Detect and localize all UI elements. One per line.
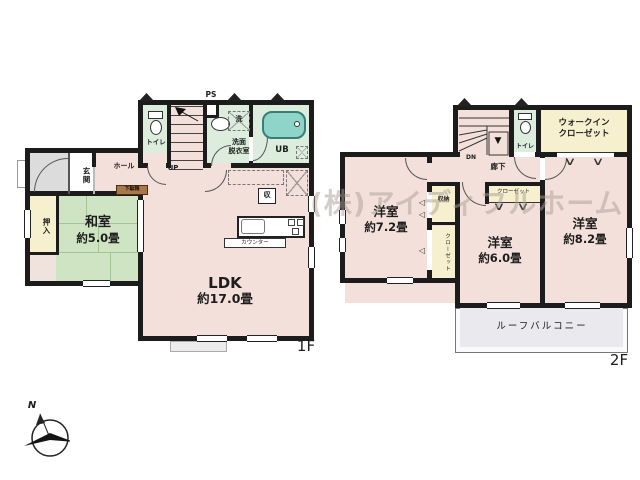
floor1-label: 1F: [290, 338, 322, 355]
wall: [340, 152, 460, 157]
washroom-label-1: 洗面: [222, 139, 256, 147]
storage-2f: [432, 186, 455, 222]
wall: [203, 163, 211, 168]
closet-side-label: クローゼット: [437, 228, 450, 276]
ldk-size-label: 約17.0畳: [187, 292, 263, 306]
storage-label: 収: [258, 192, 276, 200]
wall: [427, 222, 460, 225]
wall: [453, 105, 458, 157]
toilet-bowl-icon: [150, 120, 162, 135]
bedroom3-size-label: 約8.2畳: [555, 233, 615, 246]
bedroom2-size-label: 約6.0畳: [470, 252, 530, 265]
toilet-label: トイレ: [141, 139, 171, 146]
wall: [427, 182, 460, 186]
laundry-label: 洗: [232, 116, 246, 124]
bedroom1-size-label: 約7.2畳: [356, 221, 416, 234]
wall: [138, 100, 314, 105]
washitsu-label: 和室: [68, 216, 128, 230]
wall: [455, 182, 460, 308]
window: [197, 335, 227, 342]
toilet-tank-icon: [518, 113, 532, 120]
window: [339, 238, 346, 252]
tokonoma: [30, 254, 56, 281]
window: [487, 302, 520, 309]
storage-2f-label: 収納: [433, 197, 454, 204]
vent-triangle-icon: [514, 98, 529, 106]
stove-burner-icon: [288, 219, 295, 226]
bedroom3-label: 洋室: [563, 217, 607, 231]
stairs-down-label: DN: [460, 155, 482, 162]
stairs-up-arrow-icon: [172, 107, 202, 124]
bath-hatch: [296, 146, 308, 159]
window: [565, 302, 600, 309]
bifold-mark: ◁: [416, 210, 428, 219]
bifold-mark: ∨: [582, 155, 614, 168]
tatami-line: [110, 253, 111, 281]
tatami-line: [57, 252, 140, 253]
wall: [25, 148, 143, 153]
entrance-label: 玄関: [74, 160, 90, 190]
wall: [309, 100, 314, 341]
unit-bath-label: UB: [271, 146, 293, 155]
window: [247, 335, 277, 342]
bedroom2-label: 洋室: [478, 236, 522, 250]
toilet-bowl-icon: [520, 121, 531, 134]
floor-plan-image: トイレ PS 洗面 脱衣室 UB 洗 UP ホール 玄関 下駄箱 押入 和室 約…: [0, 0, 640, 480]
bifold-mark: ◁: [416, 246, 428, 255]
vent-triangle-icon: [457, 98, 472, 106]
wall: [203, 100, 207, 168]
ldk-label: LDK: [195, 275, 255, 292]
compass-north-label: N: [24, 400, 40, 411]
window: [308, 247, 315, 268]
stairs-2f: [459, 110, 509, 156]
window: [387, 277, 413, 284]
stove-burner-icon: [297, 219, 304, 226]
counter-label: カウンター: [224, 240, 286, 246]
wall: [231, 163, 309, 168]
window: [339, 210, 346, 224]
vent-triangle-icon: [227, 93, 242, 101]
stove-burner-icon: [292, 228, 299, 235]
stairs-up-label: UP: [160, 165, 186, 173]
sliding-door: [137, 200, 144, 252]
wall: [427, 157, 432, 163]
toilet-label: トイレ: [511, 144, 539, 151]
window: [24, 210, 31, 238]
toilet-tank-icon: [148, 111, 163, 119]
ps-label: PS: [200, 91, 222, 99]
wic-label-2: クローゼット: [548, 130, 620, 139]
shoe-cabinet-label: 下駄箱: [116, 187, 148, 193]
oshiire-label: 押入: [36, 210, 50, 242]
stairs-down-arrow-icon: ▼: [490, 136, 506, 146]
wall: [92, 153, 96, 167]
bifold-mark: ◁: [416, 198, 428, 207]
wall: [30, 252, 59, 255]
bedroom1-label: 洋室: [364, 205, 408, 219]
ldk-room: [143, 168, 309, 336]
washroom-label-2: 脱衣室: [218, 148, 260, 156]
wall: [627, 105, 632, 308]
cupboard-space: [228, 170, 284, 185]
kitchen-sink-icon: [241, 219, 265, 234]
wall: [56, 196, 59, 254]
refrigerator-space: [286, 170, 308, 196]
window: [83, 280, 110, 287]
vent-triangle-icon: [270, 93, 285, 101]
bath-drain-icon: [294, 121, 300, 127]
wall: [485, 182, 543, 186]
washitsu-size-label: 約5.0畳: [66, 232, 130, 245]
closet-mid-label: クローゼット: [488, 189, 539, 195]
wic-label-1: ウォークイン: [548, 119, 620, 128]
floor2-label: 2F: [602, 352, 636, 369]
window: [308, 196, 315, 212]
vent-triangle-icon: [139, 93, 154, 101]
front-door-line: [68, 153, 70, 194]
corridor-label: 廊下: [483, 163, 513, 171]
terrace-step: [170, 341, 227, 352]
roof-balcony-label: ルーフバルコニー: [478, 322, 606, 332]
hall-label: ホール: [104, 163, 144, 171]
entrance-step-line: [93, 167, 95, 194]
compass-rose-icon: [10, 402, 70, 466]
window: [626, 228, 633, 258]
bifold-mark: ∨: [507, 200, 539, 213]
wall: [138, 100, 143, 168]
